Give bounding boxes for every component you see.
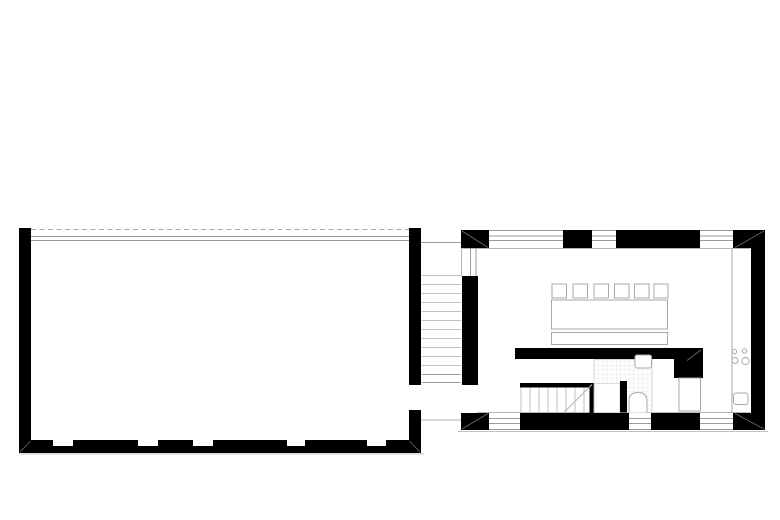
interior-wall-vertical <box>674 359 703 378</box>
hall-south-window-notch-5 <box>367 440 386 446</box>
chair-3 <box>594 284 609 298</box>
north-wall-pier-mid <box>563 230 592 248</box>
south-wall-segment-east <box>651 413 700 430</box>
south-wall-segment-mid <box>520 413 629 430</box>
interior-wall-horizontal <box>515 348 703 359</box>
chair-4 <box>615 284 630 298</box>
chair-5 <box>635 284 650 298</box>
kitchen-sink <box>734 393 749 405</box>
hall-west-wall <box>19 228 31 453</box>
east-wall <box>751 230 765 430</box>
shower-area <box>595 384 621 413</box>
hall-south-wall <box>19 440 421 453</box>
floor-plan-canvas <box>0 0 780 520</box>
stair-direction-line <box>564 385 592 413</box>
cooktop-burner-large-2 <box>742 357 749 364</box>
se-corner-pier <box>733 413 765 430</box>
west-wall <box>462 276 478 385</box>
hall-south-window-notch-2 <box>138 440 158 446</box>
bench <box>552 333 668 345</box>
chair-6 <box>654 284 668 298</box>
hall-south-window-notch-1 <box>53 440 73 446</box>
floor-plan-page <box>0 0 780 520</box>
hall-south-window-notch-3 <box>193 440 213 446</box>
cooktop-burner-small-2 <box>742 349 746 353</box>
chair-1 <box>552 284 567 298</box>
hall-south-window-notch-4 <box>287 440 305 446</box>
dining-table <box>552 300 668 329</box>
stair-top-wall <box>520 383 595 388</box>
north-wall-segment-east <box>616 230 700 248</box>
hall-east-wall-upper <box>409 228 421 385</box>
toilet <box>629 393 647 413</box>
bathroom-partition-wall <box>620 381 627 413</box>
cooktop-burner-large-1 <box>732 358 738 364</box>
cooktop-burner-small-1 <box>732 349 736 353</box>
bathroom-sink <box>635 355 652 368</box>
cupboard <box>679 378 701 411</box>
chair-2 <box>573 284 588 298</box>
